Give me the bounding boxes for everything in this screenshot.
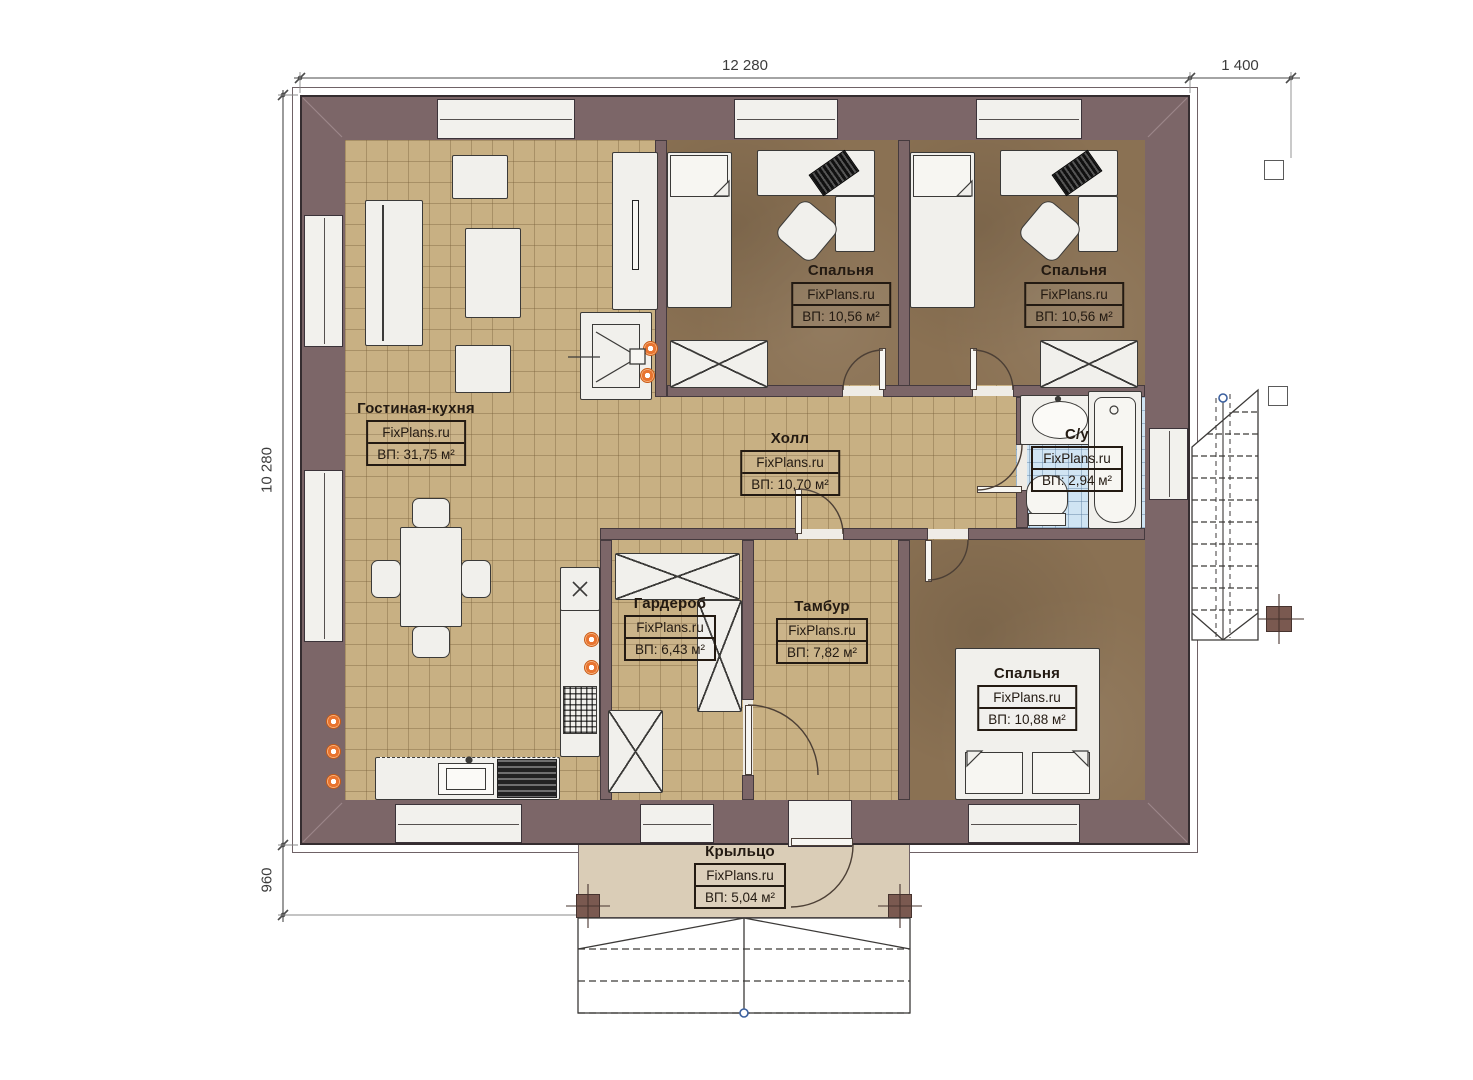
label-vestibule: Тамбур FixPlans.ru ВП: 7,82 м² — [776, 598, 868, 664]
window-wardrobe-bottom — [640, 804, 714, 843]
label-wardrobe-area: ВП: 6,43 м² — [626, 639, 714, 659]
socket-7 — [584, 660, 599, 675]
porch-post-right — [888, 894, 912, 918]
dim-top-right-width: 1 400 — [1221, 57, 1259, 74]
wall-wardrobe-vestibule-1 — [742, 540, 754, 700]
dining-chair-right — [461, 560, 491, 598]
label-vestibule-title: Тамбур — [794, 598, 850, 615]
desk-return-bedroom1 — [835, 196, 875, 252]
label-bedroom1-watermark: FixPlans.ru — [793, 284, 889, 306]
door-gap-bedroom1 — [843, 386, 883, 396]
label-living-title: Гостиная-кухня — [357, 400, 475, 417]
coffee-table — [465, 228, 521, 318]
side-door-right — [1149, 428, 1188, 500]
label-vestibule-watermark: FixPlans.ru — [778, 620, 866, 642]
label-wardrobe-title: Гардероб — [634, 595, 707, 612]
socket-5 — [640, 368, 655, 383]
label-bedroom2: Спальня FixPlans.ru ВП: 10,56 м² — [1024, 262, 1124, 328]
pillow-right-bedroom3 — [1032, 752, 1090, 794]
pillow-left-bedroom3 — [965, 752, 1023, 794]
wardrobe-bedroom2 — [1040, 340, 1138, 388]
wall-hall-south-3 — [968, 528, 1145, 540]
label-bathroom-title: С/у — [1065, 426, 1089, 443]
dining-chair-left — [371, 560, 401, 598]
dining-chair-bottom — [412, 626, 450, 658]
label-bathroom-watermark: FixPlans.ru — [1033, 448, 1121, 470]
label-bedroom1-area: ВП: 10,56 м² — [793, 306, 889, 326]
porch-steps — [578, 918, 910, 1017]
label-bedroom1: Спальня FixPlans.ru ВП: 10,56 м² — [791, 262, 891, 328]
window-bedroom1-top — [734, 99, 838, 139]
label-hall: Холл FixPlans.ru ВП: 10,70 м² — [740, 430, 840, 496]
label-bedroom3: Спальня FixPlans.ru ВП: 10,88 м² — [977, 665, 1077, 731]
door-leaf-bedroom3 — [925, 540, 932, 582]
door-leaf-wardrobe — [745, 705, 752, 775]
door-gap-bathroom — [1017, 445, 1027, 490]
wall-hall-south-2 — [843, 528, 928, 540]
fireplace-inner — [592, 324, 640, 388]
door-gap-bedroom3 — [928, 529, 968, 539]
label-bedroom1-title: Спальня — [808, 262, 874, 279]
dim-left-height: 10 280 — [259, 447, 276, 493]
label-living-watermark: FixPlans.ru — [368, 422, 464, 444]
marker-post — [1266, 606, 1292, 632]
sofa-back-line — [382, 205, 384, 341]
sofa — [365, 200, 423, 346]
door-leaf-bedroom2 — [970, 348, 977, 390]
toilet-tank — [1028, 513, 1066, 526]
fridge — [560, 567, 600, 611]
marker-square-1 — [1264, 160, 1284, 180]
label-porch-area: ВП: 5,04 м² — [696, 887, 784, 907]
marker-square-2 — [1268, 386, 1288, 406]
door-leaf-bedroom1 — [879, 348, 886, 390]
cooktop — [563, 686, 597, 734]
label-hall-area: ВП: 10,70 м² — [742, 474, 838, 494]
wardrobe-bedroom1 — [670, 340, 768, 388]
tv-screen — [632, 200, 639, 270]
kitchen-sink-basin — [446, 768, 486, 790]
door-gap-bedroom2 — [973, 386, 1013, 396]
side-stairs — [1192, 390, 1258, 640]
floor-plan-canvas: 12 280 1 400 10 280 960 Гостиная-кухня F… — [0, 0, 1473, 1080]
wardrobe-cabinet-top — [615, 553, 740, 600]
label-wardrobe: Гардероб FixPlans.ru ВП: 6,43 м² — [624, 595, 716, 661]
dim-porch-height: 960 — [259, 867, 276, 892]
desk-return-bedroom2 — [1078, 196, 1118, 252]
wardrobe-cabinet-low — [608, 710, 663, 793]
porch-post-left — [576, 894, 600, 918]
socket-6 — [584, 632, 599, 647]
label-bedroom2-watermark: FixPlans.ru — [1026, 284, 1122, 306]
label-bathroom: С/у FixPlans.ru ВП: 2,94 м² — [1031, 426, 1123, 492]
label-living: Гостиная-кухня FixPlans.ru ВП: 31,75 м² — [357, 400, 475, 466]
window-kitchen-bottom — [395, 804, 522, 843]
label-wardrobe-watermark: FixPlans.ru — [626, 617, 714, 639]
socket-3 — [326, 774, 341, 789]
wall-wardrobe-vestibule-2 — [742, 775, 754, 800]
label-bedroom3-area: ВП: 10,88 м² — [979, 709, 1075, 729]
label-hall-watermark: FixPlans.ru — [742, 452, 838, 474]
door-gap-vestibule — [798, 529, 843, 539]
pillow-bedroom1 — [670, 155, 728, 197]
label-porch-title: Крыльцо — [705, 843, 775, 860]
pillow-bedroom2 — [913, 155, 971, 197]
window-living-left-2 — [304, 470, 343, 642]
armchair-bottom — [455, 345, 511, 393]
label-bedroom2-area: ВП: 10,56 м² — [1026, 306, 1122, 326]
label-bedroom3-title: Спальня — [994, 665, 1060, 682]
dishwasher — [497, 759, 557, 798]
dining-table — [400, 527, 462, 627]
socket-4 — [643, 341, 658, 356]
label-porch: Крыльцо FixPlans.ru ВП: 5,04 м² — [694, 843, 786, 909]
armchair-top — [452, 155, 508, 199]
dim-top-width: 12 280 — [722, 57, 768, 74]
door-leaf-bathroom — [977, 486, 1022, 493]
window-living-left-1 — [304, 215, 343, 347]
window-bedroom3-bottom — [968, 804, 1080, 843]
wall-hall-north-2 — [883, 385, 973, 397]
door-leaf-entry — [791, 838, 853, 846]
label-bedroom3-watermark: FixPlans.ru — [979, 687, 1075, 709]
window-living-top — [437, 99, 575, 139]
wall-hall-south-1 — [600, 528, 798, 540]
wall-bedroom1-bedroom2 — [898, 140, 910, 397]
label-living-area: ВП: 31,75 м² — [368, 444, 464, 464]
label-bathroom-area: ВП: 2,94 м² — [1033, 470, 1121, 490]
dining-chair-top — [412, 498, 450, 528]
socket-1 — [326, 714, 341, 729]
window-bedroom2-top — [976, 99, 1082, 139]
label-porch-watermark: FixPlans.ru — [696, 865, 784, 887]
wall-vestibule-bedroom3 — [898, 540, 910, 800]
socket-2 — [326, 744, 341, 759]
label-vestibule-area: ВП: 7,82 м² — [778, 642, 866, 662]
label-hall-title: Холл — [771, 430, 809, 447]
label-bedroom2-title: Спальня — [1041, 262, 1107, 279]
